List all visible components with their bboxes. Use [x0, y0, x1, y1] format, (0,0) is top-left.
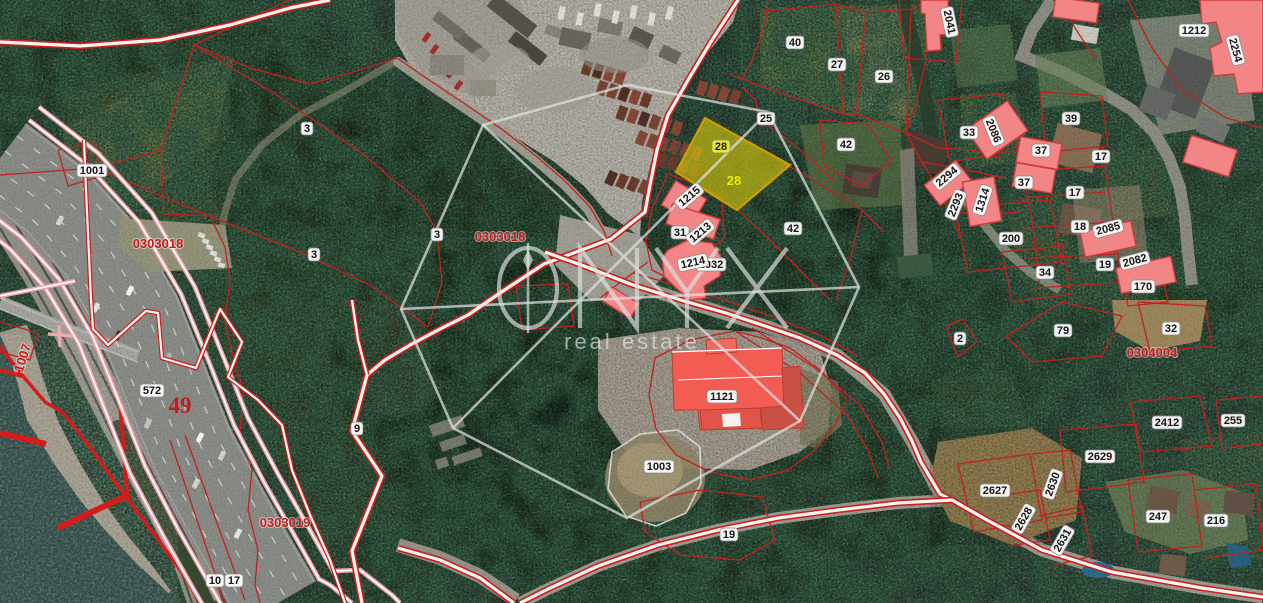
svg-text:17: 17 [228, 575, 240, 587]
svg-text:1212: 1212 [1182, 25, 1206, 37]
svg-text:40: 40 [789, 37, 801, 49]
svg-text:2629: 2629 [1088, 451, 1112, 463]
svg-text:79: 79 [1057, 325, 1069, 337]
svg-text:216: 216 [1207, 515, 1225, 527]
svg-text:19: 19 [1099, 259, 1111, 271]
svg-text:3: 3 [434, 229, 440, 241]
svg-text:2: 2 [957, 333, 963, 345]
svg-text:3: 3 [311, 249, 317, 261]
svg-text:31: 31 [674, 227, 686, 239]
svg-text:200: 200 [1002, 233, 1020, 245]
svg-text:28: 28 [727, 173, 741, 188]
svg-text:0304004: 0304004 [1127, 345, 1178, 360]
svg-text:28: 28 [715, 141, 727, 153]
svg-text:39: 39 [1065, 113, 1077, 125]
svg-text:42: 42 [787, 223, 799, 235]
svg-text:170: 170 [1134, 281, 1152, 293]
svg-text:33: 33 [963, 127, 975, 139]
svg-text:17: 17 [1095, 151, 1107, 163]
svg-text:10: 10 [209, 575, 221, 587]
svg-text:18: 18 [1074, 221, 1086, 233]
svg-text:2627: 2627 [983, 485, 1007, 497]
svg-text:3: 3 [304, 123, 310, 135]
svg-text:32: 32 [1165, 323, 1177, 335]
svg-text:17: 17 [1069, 187, 1081, 199]
svg-text:27: 27 [831, 59, 843, 71]
svg-text:255: 255 [1224, 415, 1242, 427]
svg-text:0303019: 0303019 [260, 515, 311, 530]
svg-text:19: 19 [723, 529, 735, 541]
svg-text:37: 37 [1018, 177, 1030, 189]
svg-text:0303018: 0303018 [475, 229, 526, 244]
svg-text:0303018: 0303018 [133, 236, 184, 251]
svg-text:49: 49 [169, 393, 192, 418]
svg-text:34: 34 [1039, 267, 1052, 279]
svg-text:37: 37 [1035, 145, 1047, 157]
svg-text:1001: 1001 [80, 165, 104, 177]
svg-text:9: 9 [354, 423, 360, 435]
svg-text:42: 42 [840, 139, 852, 151]
svg-text:1121: 1121 [710, 391, 734, 403]
svg-text:2412: 2412 [1155, 417, 1179, 429]
svg-text:26: 26 [878, 71, 890, 83]
svg-text:247: 247 [1149, 511, 1167, 523]
svg-text:real estate: real estate [564, 329, 700, 354]
svg-text:25: 25 [760, 113, 772, 125]
svg-text:572: 572 [143, 385, 161, 397]
svg-text:1003: 1003 [647, 461, 671, 473]
